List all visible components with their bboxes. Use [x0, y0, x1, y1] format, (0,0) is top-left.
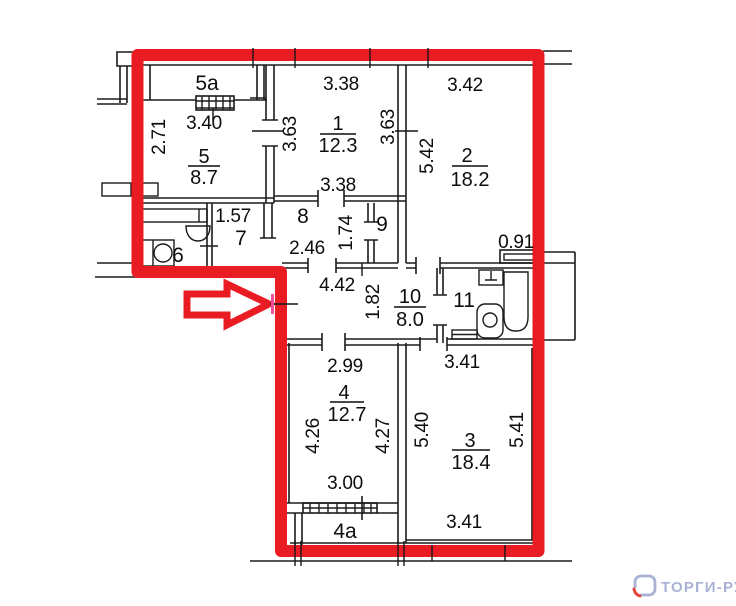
- dimension-label: 4.42: [319, 275, 355, 296]
- room-area-label: 10 8.0: [394, 286, 426, 331]
- dimension-label: 3.40: [186, 113, 222, 134]
- torgi-logo-icon: [632, 576, 655, 596]
- dimension-label: 3.00: [327, 473, 363, 494]
- closet-icon: [140, 209, 207, 222]
- dimension-label: 3.38: [323, 74, 359, 95]
- room-tag: 9: [376, 213, 388, 236]
- radiator-icon: [102, 183, 158, 196]
- room-number: 2: [461, 145, 472, 167]
- dimension-label: 3.63: [280, 116, 301, 152]
- room-tag: 8: [297, 205, 309, 228]
- bathtub-icon: [504, 272, 528, 331]
- toilet-icon-bath11: [477, 270, 503, 338]
- room-area: 12.3: [319, 135, 358, 157]
- dimension-label: 3.41: [446, 512, 482, 533]
- room-area-label: 1 12.3: [319, 113, 358, 157]
- floor-plan-canvas: 3.40 2.71 3.38 3.63 3.63 3.38 3.42 5.42 …: [0, 0, 736, 606]
- room-number: 4: [338, 382, 349, 404]
- room-tag: 7: [235, 227, 247, 250]
- dimension-label: 2.71: [149, 119, 170, 155]
- room-number: 1: [332, 113, 343, 135]
- room-area: 18.4: [452, 452, 491, 474]
- dimension-label: 3.42: [447, 75, 483, 96]
- room-number: 5: [198, 146, 209, 168]
- dimension-label: 3.63: [378, 109, 399, 145]
- room-tag: 11: [453, 289, 475, 312]
- room-area: 8.0: [396, 309, 424, 331]
- dimension-label: 3.41: [444, 352, 480, 373]
- room-area-label: 2 18.2: [451, 145, 490, 191]
- dimension-label: 1.82: [363, 284, 384, 320]
- dimension-label: 5.42: [417, 138, 438, 174]
- toilet-icon-wc6: [141, 240, 174, 266]
- dimension-label: 2.99: [327, 356, 363, 377]
- room-area: 8.7: [190, 167, 218, 189]
- room-tag: 5a: [195, 72, 219, 95]
- room-tag: 4a: [333, 520, 357, 543]
- window-sill-5a: [196, 96, 234, 110]
- dimension-label: 0.91: [498, 232, 534, 253]
- watermark-text: ТОРГИ-РУ: [661, 579, 736, 596]
- dimension-label: 5.41: [507, 412, 528, 448]
- room-number: 3: [464, 430, 475, 452]
- room-area-label: 4 12.7: [328, 382, 367, 426]
- dimension-label: 4.26: [303, 418, 324, 454]
- dimension-label: 1.74: [336, 214, 357, 251]
- watermark: ТОРГИ-РУ: [632, 576, 736, 596]
- dimension-label: 1.57: [215, 206, 251, 227]
- room-area-label: 5 8.7: [188, 146, 220, 189]
- room-tag: 6: [172, 244, 184, 267]
- room-area: 12.7: [328, 404, 367, 426]
- room-number: 10: [399, 286, 421, 308]
- room-area-label: 3 18.4: [452, 430, 491, 474]
- fixtures: [102, 183, 528, 339]
- shelf-icon-bath11: [452, 330, 477, 339]
- dimension-label: 3.38: [320, 175, 356, 196]
- window-sill-4a: [303, 503, 377, 513]
- dimension-label: 4.27: [373, 418, 394, 454]
- dimension-label: 2.46: [289, 238, 325, 259]
- dimension-label: 5.40: [412, 412, 433, 448]
- room-area: 18.2: [451, 169, 490, 191]
